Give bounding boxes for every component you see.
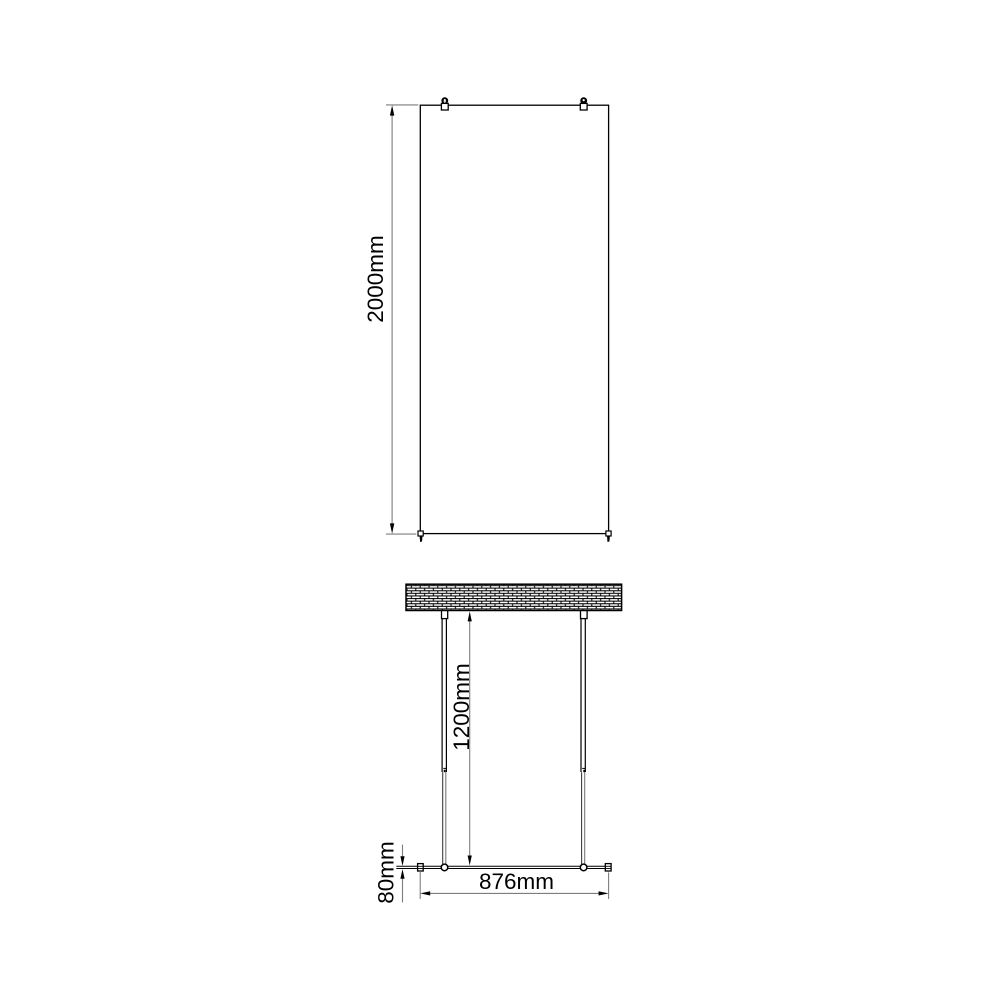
svg-text:80mm: 80mm [374, 841, 399, 904]
svg-text:2000mm: 2000mm [363, 235, 388, 323]
svg-text:876mm: 876mm [479, 869, 554, 894]
svg-text:1200mm: 1200mm [449, 663, 474, 751]
